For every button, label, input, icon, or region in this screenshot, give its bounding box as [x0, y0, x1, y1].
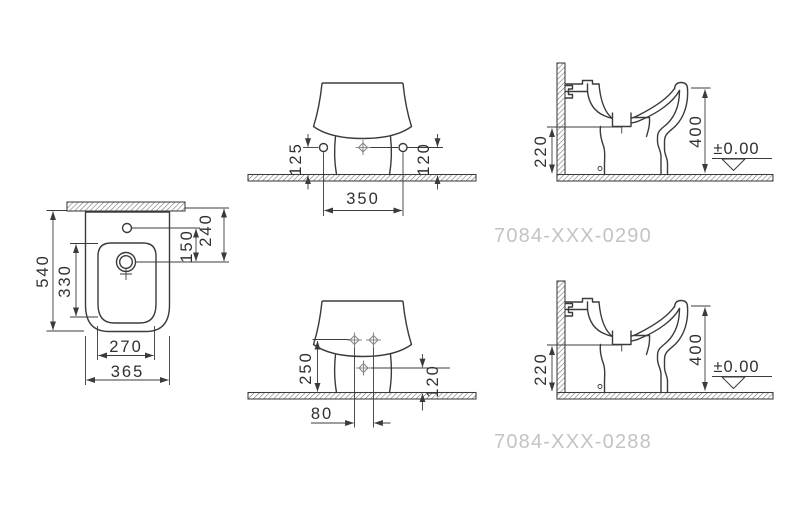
wall-section: [557, 63, 565, 181]
dim-rim-height: 400: [687, 332, 705, 366]
floor-section: [557, 175, 773, 182]
dim-wall-to-drain: 240: [197, 213, 215, 247]
dim-right-hole-height: 120: [415, 142, 433, 176]
dim-bowl-length: 330: [56, 264, 74, 298]
side2-dimension-lines: [552, 308, 705, 392]
wall-section: [557, 281, 565, 399]
technical-drawing: 540 330 150 240 270 365 125 120 350: [0, 0, 800, 513]
wall-section-plan: [67, 202, 185, 211]
bidet-front-body: [314, 301, 412, 393]
floor-section: [248, 175, 476, 182]
dim-rim-height: 400: [687, 114, 705, 148]
floor-datum-symbol: [712, 159, 772, 171]
drawing-sheet: 540 330 150 240 270 365 125 120 350: [0, 0, 800, 513]
dim-fixing-spacing: 80: [311, 405, 333, 423]
dim-drain-height: 120: [424, 364, 442, 398]
front-view-0290: 125 120 350: [248, 83, 476, 216]
side1-dimension-lines: [552, 90, 705, 174]
side-view-0288: 220 400 ±0.00 7084-XXX-0288: [494, 281, 773, 453]
dim-overall-length: 540: [34, 254, 52, 288]
dim-tap-to-drain: 150: [178, 229, 196, 263]
dim-bowl-width: 270: [109, 338, 143, 356]
drain-center-mark: [356, 140, 371, 155]
floor-datum-symbol: [712, 377, 772, 389]
dim-fixing-height: 250: [297, 351, 315, 385]
right-fixing-hole: [399, 144, 407, 152]
drain-center-mark: [356, 361, 371, 376]
side-view-0290: 220 400 ±0.00 7084-XXX-0290: [494, 63, 773, 247]
dim-overall-width: 365: [111, 363, 145, 381]
dim-left-hole-height: 125: [287, 142, 305, 176]
dim-hole-spacing: 350: [346, 190, 380, 208]
dim-drain-height: 220: [532, 352, 550, 386]
left-fixing-hole: [320, 144, 328, 152]
front-view-0288: 250 120 80: [248, 301, 476, 428]
bidet-side-section: [547, 81, 688, 175]
plan-view: 540 330 150 240 270 365: [34, 202, 229, 385]
part-number-0290: 7084-XXX-0290: [494, 225, 652, 247]
bidet-side-section: [547, 299, 688, 393]
dim-drain-height: 220: [532, 134, 550, 168]
bidet-front-body: [314, 83, 412, 175]
part-number-0288: 7084-XXX-0288: [494, 431, 652, 453]
floor-section: [557, 393, 773, 400]
floor-datum-label: ±0.00: [713, 358, 759, 376]
floor-datum-label: ±0.00: [713, 140, 759, 158]
